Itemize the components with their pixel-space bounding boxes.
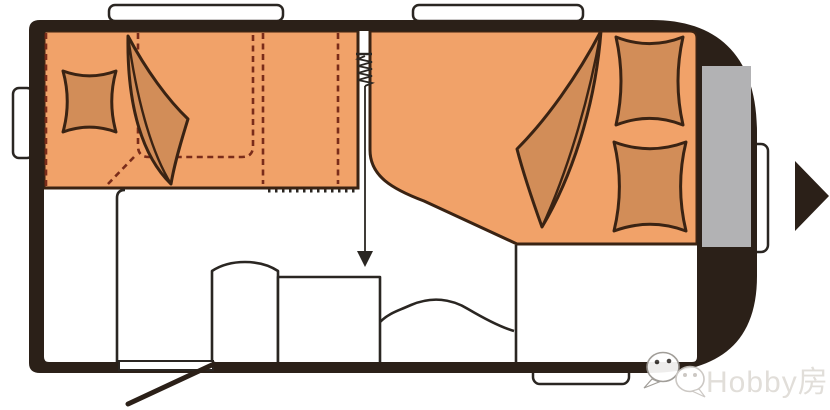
roof-window-front-icon — [413, 5, 583, 21]
wardrobe-cabinet — [212, 262, 278, 362]
kitchen-block — [278, 277, 380, 362]
washroom-wall-line — [117, 190, 125, 362]
front-panoramic-window — [702, 66, 751, 247]
pillow-front-bottom-icon — [614, 142, 686, 231]
watermark: Hobby房车 — [644, 353, 830, 400]
caravan-floorplan-image: Hobby房车 — [0, 0, 830, 410]
wechat-icon — [644, 353, 705, 398]
floorplan-canvas: Hobby房车 — [0, 0, 830, 410]
pillow-rear-icon — [63, 71, 116, 132]
arrow-right-icon — [795, 161, 829, 231]
pillow-front-top-icon — [616, 37, 683, 125]
kitchen-counter-curve — [380, 300, 514, 331]
roof-window-rear-icon — [109, 5, 283, 21]
arrow-down-icon — [357, 251, 373, 267]
watermark-text: Hobby房车 — [706, 366, 830, 399]
